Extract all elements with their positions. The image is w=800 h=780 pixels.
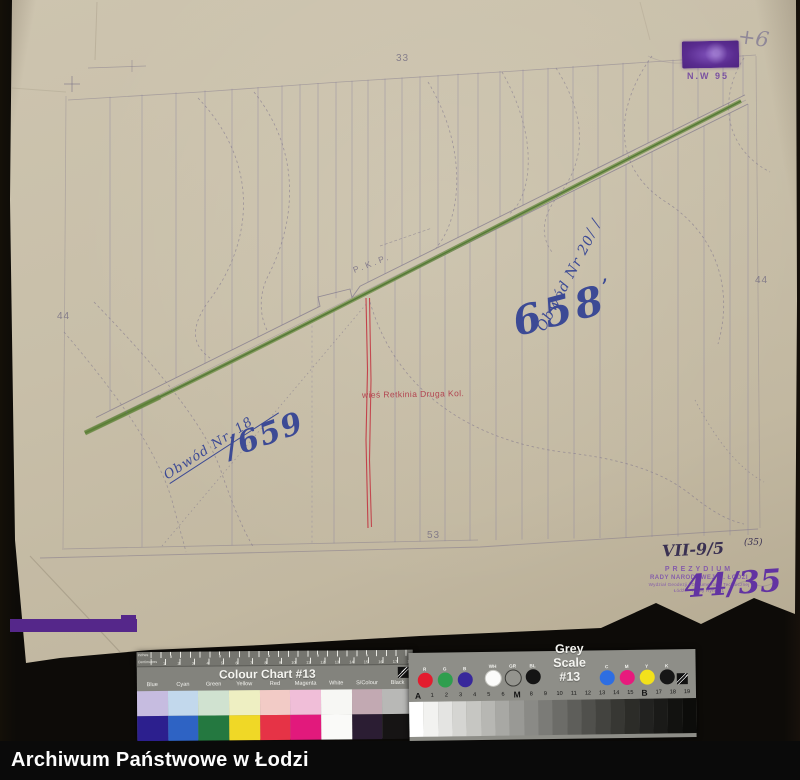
grey-step-13 bbox=[596, 699, 611, 734]
colour-row-light bbox=[137, 689, 413, 716]
circle-swatch bbox=[659, 669, 674, 684]
cm-number: 12 bbox=[310, 659, 325, 664]
swatch-light-white bbox=[321, 689, 352, 714]
swatch-light-red bbox=[260, 690, 291, 715]
swatch-full-blue bbox=[137, 716, 168, 741]
scale-index-label: M bbox=[510, 689, 524, 699]
scale-index-label: 9 bbox=[538, 691, 552, 697]
calibration-circle-y: Y bbox=[637, 664, 657, 685]
purple-marker-bar bbox=[10, 619, 137, 632]
grey-step-12 bbox=[581, 699, 596, 734]
scale-index-label: A bbox=[411, 691, 425, 701]
swatch-light-green bbox=[198, 690, 229, 715]
sheet-number-top: 33 bbox=[396, 53, 409, 64]
grey-step-7 bbox=[509, 700, 524, 735]
archive-reference-suffix: (35) bbox=[744, 538, 762, 548]
circle-swatch bbox=[619, 670, 634, 685]
grey-step-17 bbox=[653, 698, 668, 733]
sheet-number-right: 44 bbox=[755, 275, 768, 286]
grey-step-15 bbox=[624, 699, 639, 734]
scale-index-label: 14 bbox=[609, 690, 623, 696]
swatch-full-magenta bbox=[291, 715, 322, 740]
swatch-full-red bbox=[260, 715, 291, 740]
cm-number: 17 bbox=[383, 658, 398, 663]
scale-index-label: 15 bbox=[623, 690, 637, 696]
scan-stage: 33 44 44 53 P.K.P. wieś Retkinia Druga K… bbox=[0, 0, 800, 780]
stamp-handwritten-number: 44/35 bbox=[683, 563, 783, 606]
cm-number: 16 bbox=[368, 659, 383, 664]
purple-ink-stamp bbox=[682, 41, 739, 69]
cm-number: 8 bbox=[252, 660, 267, 665]
swatch-light-magenta bbox=[290, 690, 321, 715]
ruler-inches-label: Inches bbox=[138, 653, 149, 657]
ruler-strip: Inches Centimetres 123456789101112131415… bbox=[137, 650, 413, 667]
scale-index-label: 10 bbox=[553, 691, 567, 697]
swatch-light-yellow bbox=[229, 690, 260, 715]
grey-scale-header: RGB WHGRBL Grey Scale #13 CMYK bbox=[408, 649, 695, 690]
scale-index-label: 5 bbox=[482, 692, 496, 698]
maker-logo-icon bbox=[677, 673, 688, 684]
sheet-number-left: 44 bbox=[57, 311, 70, 322]
cm-number: 9 bbox=[267, 659, 282, 664]
swatch-light-blue bbox=[137, 691, 168, 716]
scale-index-label: 11 bbox=[567, 691, 581, 697]
rgb-circles: RGB bbox=[415, 666, 475, 688]
grey-step-1 bbox=[423, 702, 438, 737]
grey-step-18 bbox=[667, 698, 682, 733]
grey-step-3 bbox=[452, 701, 467, 736]
circle-swatch bbox=[417, 673, 432, 688]
colour-column-label: Blue bbox=[137, 682, 168, 691]
calibration-circle-wh: WH bbox=[483, 664, 503, 687]
cmyk-circles: CMYK bbox=[597, 663, 677, 685]
circle-swatch bbox=[457, 672, 472, 687]
circle-swatch bbox=[437, 672, 452, 687]
swatch-light-scolour bbox=[352, 689, 383, 714]
calibration-circle-gr: GR bbox=[503, 663, 523, 686]
grey-step-16 bbox=[639, 699, 654, 734]
village-label: wieś Retkinia Druga Kol. bbox=[362, 388, 464, 400]
scale-index-label: 17 bbox=[652, 689, 666, 695]
colour-column-label: S/Colour bbox=[352, 680, 383, 689]
swatch-light-cyan bbox=[168, 691, 199, 716]
grey-step-9 bbox=[538, 700, 553, 735]
circle-swatch bbox=[504, 669, 521, 686]
stamp-code-label: N.W 95 bbox=[687, 71, 729, 81]
scale-index-label: 19 bbox=[680, 689, 694, 695]
grey-step-10 bbox=[553, 700, 568, 735]
scale-index-label: B bbox=[637, 688, 651, 698]
colour-column-label: White bbox=[321, 680, 352, 689]
grey-step-4 bbox=[466, 701, 481, 736]
grey-step-8 bbox=[524, 700, 539, 735]
grey-scale-gradient-strip bbox=[409, 698, 696, 737]
cm-number: 5 bbox=[209, 660, 224, 665]
colour-row-full bbox=[137, 714, 413, 741]
calibration-circle-b: B bbox=[455, 666, 475, 687]
swatch-full-yellow bbox=[229, 715, 260, 740]
scale-index-label: 2 bbox=[439, 692, 453, 698]
circle-swatch bbox=[639, 670, 654, 685]
archive-footer-bar: Archiwum Państwowe w Łodzi bbox=[0, 741, 800, 780]
pencil-plus-mark: +6 bbox=[736, 24, 770, 52]
colour-chart: Inches Centimetres 123456789101112131415… bbox=[137, 650, 414, 740]
colour-chart-title: Colour Chart #13 bbox=[137, 665, 398, 681]
grey-step-6 bbox=[495, 701, 510, 736]
swatch-full-scolour bbox=[352, 714, 383, 739]
calibration-circle-m: M bbox=[617, 664, 637, 685]
grey-step-19 bbox=[682, 698, 697, 733]
archive-name: Archiwum Państwowe w Łodzi bbox=[11, 749, 309, 772]
cm-number: 14 bbox=[339, 659, 354, 664]
grey-step-2 bbox=[438, 701, 453, 736]
swatch-full-white bbox=[321, 714, 352, 739]
cm-number: 1 bbox=[151, 660, 166, 665]
sheet-number-bottom: 53 bbox=[427, 530, 440, 541]
cm-numbers: 123456789101112131415161718 bbox=[151, 658, 413, 665]
grey-step-11 bbox=[567, 700, 582, 735]
cm-number: 3 bbox=[180, 660, 195, 665]
scale-index-label: 6 bbox=[496, 692, 510, 698]
calibration-circle-r: R bbox=[415, 667, 435, 688]
calibration-circle-bl: BL bbox=[523, 663, 543, 686]
calibration-circle-g: G bbox=[435, 666, 455, 687]
colour-column-label: Yellow bbox=[229, 681, 260, 690]
cm-number: 11 bbox=[296, 659, 311, 664]
swatch-full-cyan bbox=[168, 716, 199, 741]
grey-step-5 bbox=[481, 701, 496, 736]
calibration-circle-k: K bbox=[657, 663, 677, 684]
purple-marker-bar-step bbox=[121, 615, 136, 622]
scale-index-label: 12 bbox=[581, 690, 595, 696]
scale-index-label: 8 bbox=[524, 691, 538, 697]
colour-column-label: Red bbox=[260, 681, 291, 690]
grey-scale-title: Grey Scale #13 bbox=[542, 641, 597, 686]
cm-number: 7 bbox=[238, 660, 253, 665]
maker-logo-icon bbox=[398, 667, 409, 678]
cm-number: 4 bbox=[194, 660, 209, 665]
scale-index-label: 1 bbox=[425, 693, 439, 699]
scale-index-label: 4 bbox=[468, 692, 482, 698]
cm-number: 6 bbox=[223, 660, 238, 665]
cm-number: 2 bbox=[165, 660, 180, 665]
archive-reference-code: VII-9/5 bbox=[662, 538, 725, 560]
circle-swatch bbox=[484, 670, 501, 687]
colour-column-label: Cyan bbox=[168, 682, 199, 691]
colour-column-label: Magenta bbox=[290, 681, 321, 690]
grey-scale-chart: RGB WHGRBL Grey Scale #13 CMYK A123456M8… bbox=[408, 649, 696, 741]
grey-step-14 bbox=[610, 699, 625, 734]
circle-swatch bbox=[599, 670, 614, 685]
scale-index-label: 3 bbox=[453, 692, 467, 698]
grey-step-0 bbox=[409, 702, 424, 737]
circle-swatch bbox=[525, 669, 540, 684]
cm-number: 15 bbox=[354, 659, 369, 664]
scale-index-label: 18 bbox=[666, 689, 680, 695]
wh-gr-bl-circles: WHGRBL bbox=[483, 663, 543, 687]
calibration-circle-c: C bbox=[597, 664, 617, 685]
scale-index-label: 13 bbox=[595, 690, 609, 696]
swatch-full-green bbox=[199, 715, 230, 740]
colour-column-label: Green bbox=[198, 681, 229, 690]
cm-number: 10 bbox=[281, 659, 296, 664]
cm-number: 13 bbox=[325, 659, 340, 664]
